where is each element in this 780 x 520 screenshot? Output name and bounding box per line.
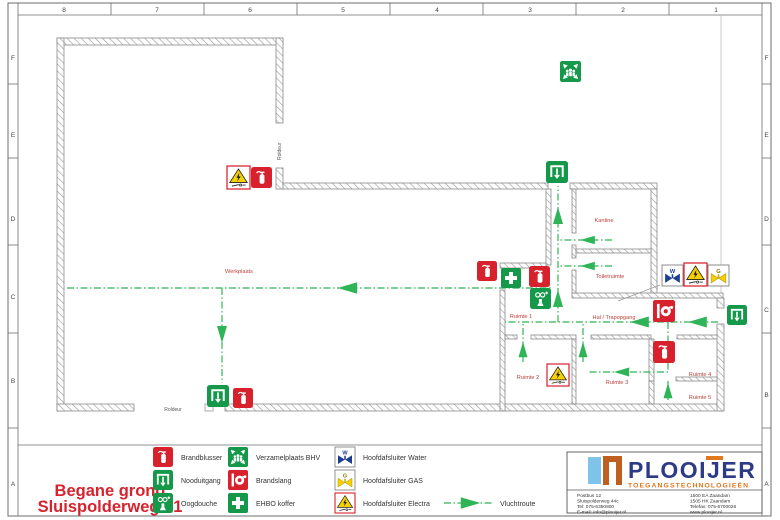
legend-label: EHBO koffer [256,501,296,508]
ruler-right: F E D C B A [762,55,771,488]
assembly-point-icon [560,61,581,82]
ruler-number: 5 [341,7,345,14]
wall-segment [572,189,576,233]
wall-segment [717,298,724,308]
address-line: E-mail: info@plooijer.nl [577,510,626,516]
wall-segment [572,245,576,258]
ruler-letter: B [11,378,15,385]
eye-wash-icon [530,288,551,309]
fire-hose-icon [228,470,248,490]
address-line: 1500 EA Zaandam [690,493,730,499]
address-line: Sluispolderweg 44c [577,499,619,505]
room-label-toiletruimte: Toiletruimte [596,274,625,280]
ruler-letter: C [764,307,769,314]
wall-segment [57,404,134,411]
escape-route-arrow [553,290,563,307]
legend-label: Hoofdafsluiter Water [363,455,427,462]
legend-label: Hoofdafsluiter Electra [363,501,430,508]
room-label-ruimte-2: Ruimte 2 [517,375,539,381]
escape-route-arrow [553,207,563,224]
room-label-ruimte-5: Ruimte 5 [689,395,711,401]
ruler-letter: D [11,216,16,223]
electric-shutoff-icon [227,166,250,189]
wall-segment [572,339,576,404]
ruler-number: 4 [435,7,439,14]
escape-route-arrow [664,383,673,398]
wall-segment [570,183,657,189]
ruler-letter: A [11,481,16,488]
wall-segment [717,324,724,411]
wall-segment [57,38,64,411]
legend-label: Nooduitgang [181,478,221,485]
wall-segment [572,293,723,298]
legend-label: Brandslang [256,478,292,485]
wall-segment [57,38,283,45]
wall-segment [572,270,576,293]
fire-extinguisher-icon [233,388,253,408]
escape-route-arrow [338,282,358,294]
address-line: 1505 HK Zaandam [690,499,730,505]
ruler-left: F E D C B A [8,55,18,488]
gas-shutoff-icon [335,470,355,490]
ruler-number: 7 [155,7,159,14]
room-label-ruimte-4: Ruimte 4 [689,372,711,378]
wall-segment [225,404,724,411]
wall-segment [649,381,654,404]
water-shutoff-icon [662,265,683,286]
room-label-kantine: Kantine [595,218,614,224]
emergency-exit-icon [207,385,229,407]
escape-route-arrow [217,326,227,343]
wall-segment [283,183,548,189]
wall-segment [677,335,717,339]
escape-route-arrow [579,342,588,357]
ruler-number: 6 [248,7,252,14]
escape-route-arrow [519,342,528,357]
ruler-top-ticks [111,3,669,15]
assembly-point-icon [228,447,248,467]
water-shutoff-icon [335,447,355,467]
logo-ij-bar [706,456,723,460]
escape-route-arrow [580,236,594,245]
logo-tagline: TOEGANGSTECHNOLOGIEËN [628,482,749,490]
address-line: www.plooijer.nl [690,510,722,516]
ruler-number: 8 [62,7,66,14]
legend-label: Hoofdafsluiter GAS [363,478,423,485]
room-label-ruimte-1: Ruimte 1 [510,314,532,320]
wall-segment [276,168,283,189]
emergency-exit-icon [153,470,173,490]
ruler-number: 2 [621,7,625,14]
wall-segment [546,189,551,265]
ruler-number: 1 [714,7,718,14]
roll-door-label: Roldeur [277,142,283,160]
logo-mark-blue [588,457,601,484]
fire-extinguisher-icon [477,261,497,281]
ruler-letter: A [764,481,769,488]
fire-hose-icon [653,300,675,322]
legend: Brandblusser Nooduitgang Oogdouche Verza… [153,447,536,513]
ruler-letter: E [764,132,769,139]
wall-segment [505,335,517,339]
escape-route-arrow [688,317,707,328]
escape-route-arrow [580,262,594,271]
escape-route-arrow [614,368,629,377]
wall-segment [591,335,651,339]
fire-extinguisher-icon [653,341,675,363]
wall-segment [576,249,651,253]
room-label-hal-trapopgang: Hal / Trapopgang [593,315,636,321]
fire-extinguisher-icon [153,447,173,467]
electric-shutoff-icon [684,263,707,286]
ruler-letter: B [764,392,768,399]
legend-route-label: Vluchtroute [500,501,536,508]
legend-label: Brandblusser [181,455,223,462]
roll-door-label: Roldeur [164,407,182,413]
ruler-letter: C [11,294,16,301]
ruler-number: 3 [528,7,532,14]
wall-segment [276,38,283,123]
walls [57,38,724,411]
logo-name: PLOOIJER [628,457,756,483]
plan-icons [207,61,747,408]
address-line: Postbus 12 [577,493,601,499]
wall-segment [500,290,505,411]
ruler-letter: D [764,216,769,223]
ruler-letter: F [765,55,769,62]
evacuation-plan-sheet: W G 8 7 6 5 4 3 2 1 [0,0,780,520]
room-label-werkplaats: Werkplaats [225,269,253,275]
gas-shutoff-icon [708,265,729,286]
wall-segment [531,335,576,339]
logo-block: PLOOIJER TOEGANGSTECHNOLOGIEËN Postbus 1… [567,452,762,516]
first-aid-icon [501,268,521,288]
address-line: Tel: 075-6350800 [577,504,614,510]
escape-route-arrow [461,497,481,509]
legend-label: Verzamelplaats BHV [256,455,321,462]
fire-extinguisher-icon [251,167,272,188]
fire-extinguisher-icon [529,266,550,287]
electric-shutoff-icon [335,493,355,513]
ruler-letter: E [11,132,16,139]
eye-wash-icon [153,493,173,513]
first-aid-icon [228,493,248,513]
address-line: Telefax: 075-6700026 [690,504,736,510]
emergency-exit-icon [727,305,747,325]
legend-label: Oogdouche [181,501,217,508]
electric-shutoff-icon [547,364,569,386]
emergency-exit-icon [546,161,568,183]
ruler-letter: F [11,55,15,62]
wall-segment [651,189,657,298]
room-label-ruimte-3: Ruimte 3 [606,380,628,386]
